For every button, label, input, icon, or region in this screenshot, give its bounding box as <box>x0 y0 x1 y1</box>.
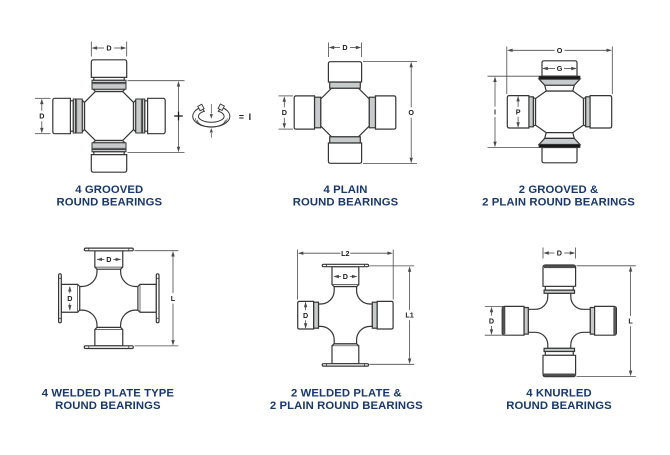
svg-text:L: L <box>628 317 633 326</box>
svg-text:2 PLAIN ROUND BEARINGS: 2 PLAIN ROUND BEARINGS <box>482 196 635 208</box>
svg-text:D: D <box>106 255 111 264</box>
svg-text:O: O <box>408 108 414 117</box>
svg-text:2 WELDED PLATE &: 2 WELDED PLATE & <box>291 387 402 399</box>
svg-text:D: D <box>343 272 348 281</box>
svg-text:D: D <box>557 249 562 258</box>
svg-text:D: D <box>489 316 494 325</box>
svg-text:O: O <box>557 46 563 55</box>
svg-text:ROUND BEARINGS: ROUND BEARINGS <box>506 400 612 412</box>
svg-text:4 PLAIN: 4 PLAIN <box>323 184 367 196</box>
svg-text:I: I <box>494 107 496 116</box>
svg-text:=: = <box>239 112 244 122</box>
svg-text:D: D <box>39 112 44 121</box>
svg-text:D: D <box>106 44 111 53</box>
svg-text:I: I <box>249 112 251 122</box>
svg-text:P: P <box>516 107 521 116</box>
svg-text:D: D <box>342 43 347 52</box>
svg-text:D: D <box>282 108 287 117</box>
svg-text:2 PLAIN ROUND BEARINGS: 2 PLAIN ROUND BEARINGS <box>270 400 423 412</box>
svg-text:ROUND BEARINGS: ROUND BEARINGS <box>57 196 163 208</box>
svg-text:D: D <box>303 311 308 320</box>
svg-text:L2: L2 <box>341 249 349 258</box>
svg-text:L: L <box>171 294 176 303</box>
svg-text:4 KNURLED: 4 KNURLED <box>526 387 592 399</box>
svg-text:D: D <box>67 294 72 303</box>
svg-text:4 GROOVED: 4 GROOVED <box>75 184 143 196</box>
svg-text:L1: L1 <box>405 311 413 320</box>
svg-text:4 WELDED PLATE TYPE: 4 WELDED PLATE TYPE <box>42 387 175 399</box>
svg-text:ROUND BEARINGS: ROUND BEARINGS <box>293 196 399 208</box>
svg-text:2 GROOVED &: 2 GROOVED & <box>519 184 599 196</box>
svg-text:G: G <box>557 64 563 73</box>
svg-text:ROUND BEARINGS: ROUND BEARINGS <box>55 400 161 412</box>
